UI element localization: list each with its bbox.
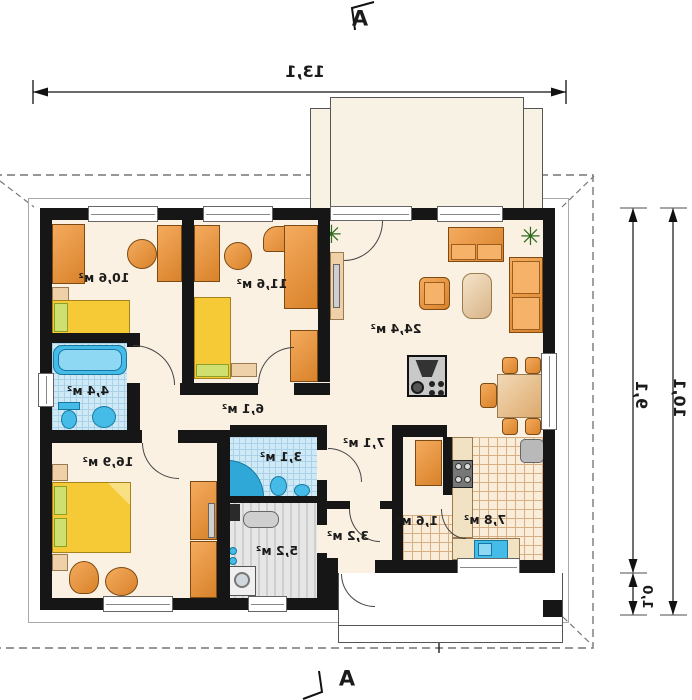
wall-int [52, 333, 140, 343]
armchair [69, 561, 99, 594]
tap [229, 547, 237, 555]
wall-int [180, 383, 258, 395]
desk [157, 225, 182, 282]
wall-int [294, 383, 330, 395]
toilet-bowl [61, 410, 77, 429]
wall-ext-top [412, 208, 437, 220]
wall-int [127, 383, 140, 430]
fireplace-knob [429, 390, 435, 396]
wall-pantry [392, 425, 403, 560]
room-label-entry-hall: 3,2 м² [327, 530, 369, 543]
bed-pillow [54, 303, 68, 332]
window [248, 596, 287, 612]
desk [194, 225, 220, 282]
room-label-utility-room: 5,2 м² [256, 545, 298, 558]
section-marker-bottom: A [339, 669, 355, 690]
window [38, 373, 54, 407]
section-marker-top: A [352, 9, 368, 30]
wall-ext-bottom [173, 598, 248, 610]
wall-int [317, 480, 327, 497]
wardrobe-mirror [208, 503, 215, 538]
wall-int [403, 425, 447, 437]
fridge [520, 439, 544, 463]
wall-ext-bottom-right [520, 560, 555, 573]
porch-outer [330, 97, 524, 209]
plant-icon: ✳ [520, 224, 541, 249]
wall-int [217, 496, 327, 503]
wall-ext-left [40, 208, 52, 610]
fireplace-knob [438, 390, 444, 396]
burner [464, 463, 471, 470]
room-label-room-1: 10,6 м² [79, 272, 130, 285]
dining-chair [502, 418, 518, 435]
wall-int [182, 220, 194, 395]
pouf [105, 567, 138, 596]
tap [229, 557, 237, 565]
room-label-pantry: 1,6 м² [396, 515, 438, 528]
window [88, 206, 158, 222]
sofa-cushion [512, 297, 540, 330]
dresser [290, 330, 318, 382]
dining-chair [502, 357, 518, 374]
wall-int [318, 220, 330, 382]
dining-chair [525, 418, 541, 435]
room-label-kitchen: 7,8 м² [464, 514, 506, 527]
room-label-shower-room: 3,1 м² [260, 451, 302, 464]
window [203, 206, 273, 222]
dimension-height-inner: 9,1 [633, 381, 649, 409]
wall-ext-top [273, 208, 330, 220]
wall-int [317, 497, 327, 525]
fireplace-knob [429, 381, 435, 387]
dimension-offset-bottom: 1,0 [639, 585, 653, 609]
dining-chair [525, 357, 541, 374]
rug [231, 363, 257, 377]
wall-ext-right [543, 208, 555, 353]
coffee-table [462, 273, 492, 319]
sofa-cushion [477, 244, 502, 260]
sofa-cushion [512, 261, 540, 294]
dimension-line-right [633, 208, 673, 615]
water-heater [243, 511, 279, 528]
porch-glass-door [330, 206, 412, 221]
nightstand [52, 464, 68, 481]
window [437, 206, 503, 222]
bed-pillow [196, 364, 229, 377]
desk-chair [127, 239, 157, 269]
terrace-step-line [339, 625, 562, 626]
wall-ext-right [543, 430, 555, 573]
wall-ext-bottom-right [375, 560, 457, 573]
bed-pillow [54, 486, 67, 515]
mirror [333, 264, 340, 308]
bed-pillow [54, 518, 67, 547]
wall-ext-top [158, 208, 203, 220]
window [103, 596, 173, 612]
toilet-bowl [270, 476, 287, 496]
dimension-width-top: 13,1 [285, 64, 324, 80]
room-label-hall: 6,1 м² [222, 403, 264, 416]
burner [464, 476, 471, 483]
desk-chair [224, 242, 252, 270]
wall-ext-top [40, 208, 88, 220]
room-label-corridor: 7,1 м² [343, 437, 385, 450]
room-label-living-room: 24,4 м² [371, 323, 422, 336]
washing-machine-door [234, 572, 250, 588]
wardrobe [284, 225, 318, 309]
sofa-cushion [451, 244, 476, 260]
room-label-bathroom: 4,4 м² [67, 385, 109, 398]
wall-int [230, 425, 327, 437]
room-label-bedroom: 16,9 м² [83, 456, 134, 469]
floor-plan: ✳ ✳ [0, 0, 692, 700]
bathtub-basin [58, 349, 122, 371]
wall-int [327, 501, 350, 509]
wall-int [317, 437, 327, 450]
burner [455, 476, 462, 483]
wall-pantry [443, 437, 452, 495]
pantry-cabinet [415, 440, 442, 486]
sink-basin [478, 543, 492, 556]
fireplace-knob [438, 381, 444, 387]
terrace-post [543, 600, 562, 617]
window [541, 353, 557, 430]
burner [455, 463, 462, 470]
wall-int [380, 501, 392, 509]
wall-int [217, 430, 230, 598]
fireplace-burner [411, 381, 424, 394]
wardrobe [190, 541, 217, 598]
dining-chair [480, 383, 497, 408]
wall-int [40, 430, 142, 443]
armchair-cushion [424, 282, 445, 305]
dimension-height-outer: 10,1 [671, 378, 687, 417]
bidet [92, 406, 116, 428]
section-mark-bottom-line [303, 671, 322, 699]
nightstand [52, 554, 68, 571]
wall-ext-bottom [40, 598, 103, 610]
dining-table [497, 374, 543, 418]
toilet-tank [58, 402, 80, 410]
room-label-room-2: 11,6 м² [237, 278, 288, 291]
wall-int [317, 553, 327, 600]
